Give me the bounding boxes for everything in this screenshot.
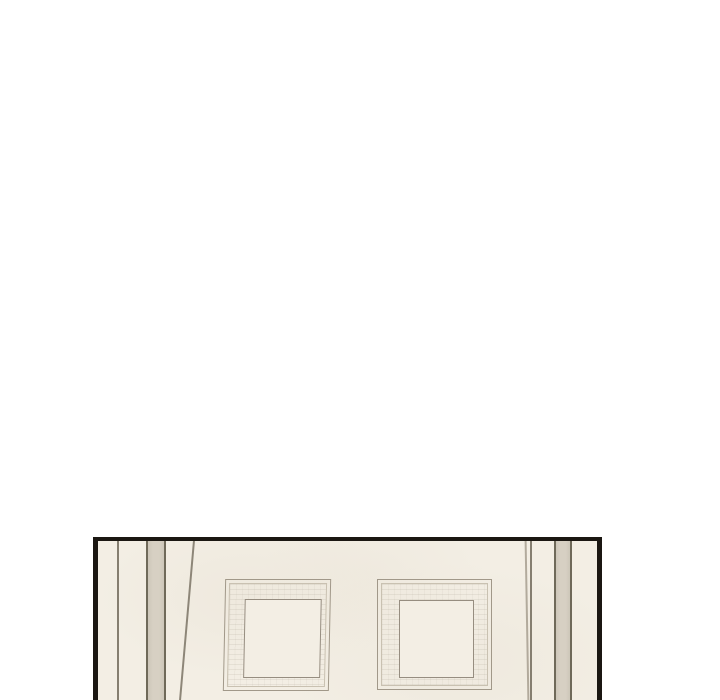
webtoon-page-background: Mostly blank white webtoon page; at the … bbox=[0, 0, 720, 700]
molding-stripe-right bbox=[556, 541, 570, 700]
door-panel-frame-left bbox=[223, 579, 331, 691]
door-panel-inset-left bbox=[243, 599, 322, 678]
door-panel-frame-right bbox=[377, 579, 492, 690]
molding-stripe-right-edge-line bbox=[570, 541, 572, 700]
door-panel-inset-right bbox=[399, 600, 474, 678]
molding-stripe-left bbox=[148, 541, 164, 700]
paneled-wall: Mostly blank white webtoon page; at the … bbox=[98, 541, 597, 700]
comic-panel: Mostly blank white webtoon page; at the … bbox=[93, 537, 602, 700]
molding-line-right-inner bbox=[530, 541, 532, 700]
panel-caption: Mostly blank white webtoon page; at the … bbox=[98, 541, 99, 542]
molding-line-left-outer bbox=[117, 541, 119, 700]
door-right-edge-line bbox=[525, 541, 529, 700]
door-left-edge-line bbox=[179, 541, 195, 700]
molding-stripe-left-inner-line bbox=[164, 541, 166, 700]
